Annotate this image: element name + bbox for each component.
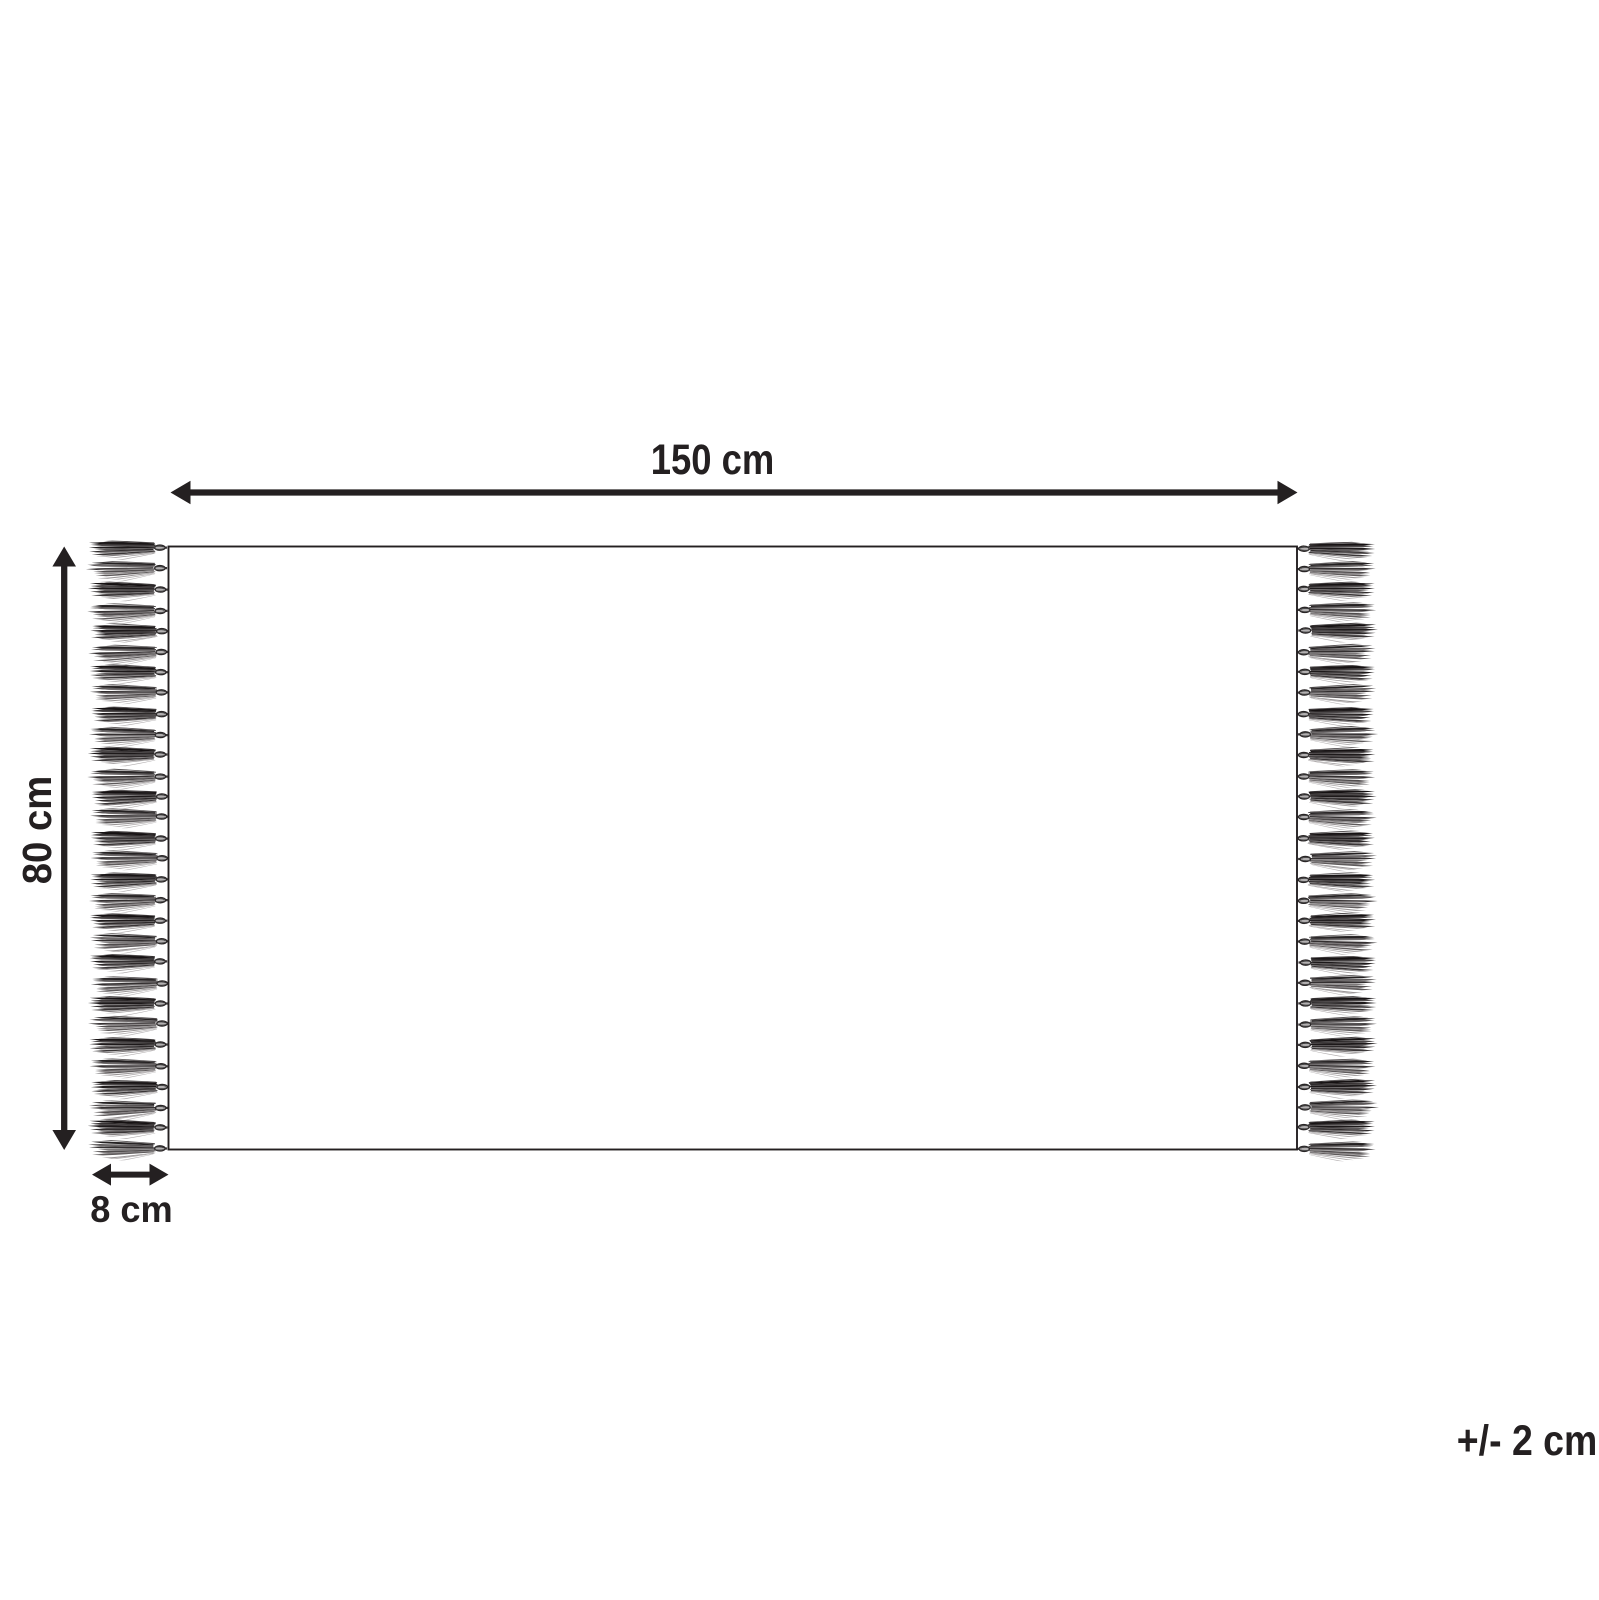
svg-text:8 cm: 8 cm	[90, 1189, 173, 1230]
svg-text:+/- 2 cm: +/- 2 cm	[1457, 1417, 1598, 1464]
svg-text:80 cm: 80 cm	[14, 776, 60, 885]
svg-text:150 cm: 150 cm	[651, 436, 775, 483]
